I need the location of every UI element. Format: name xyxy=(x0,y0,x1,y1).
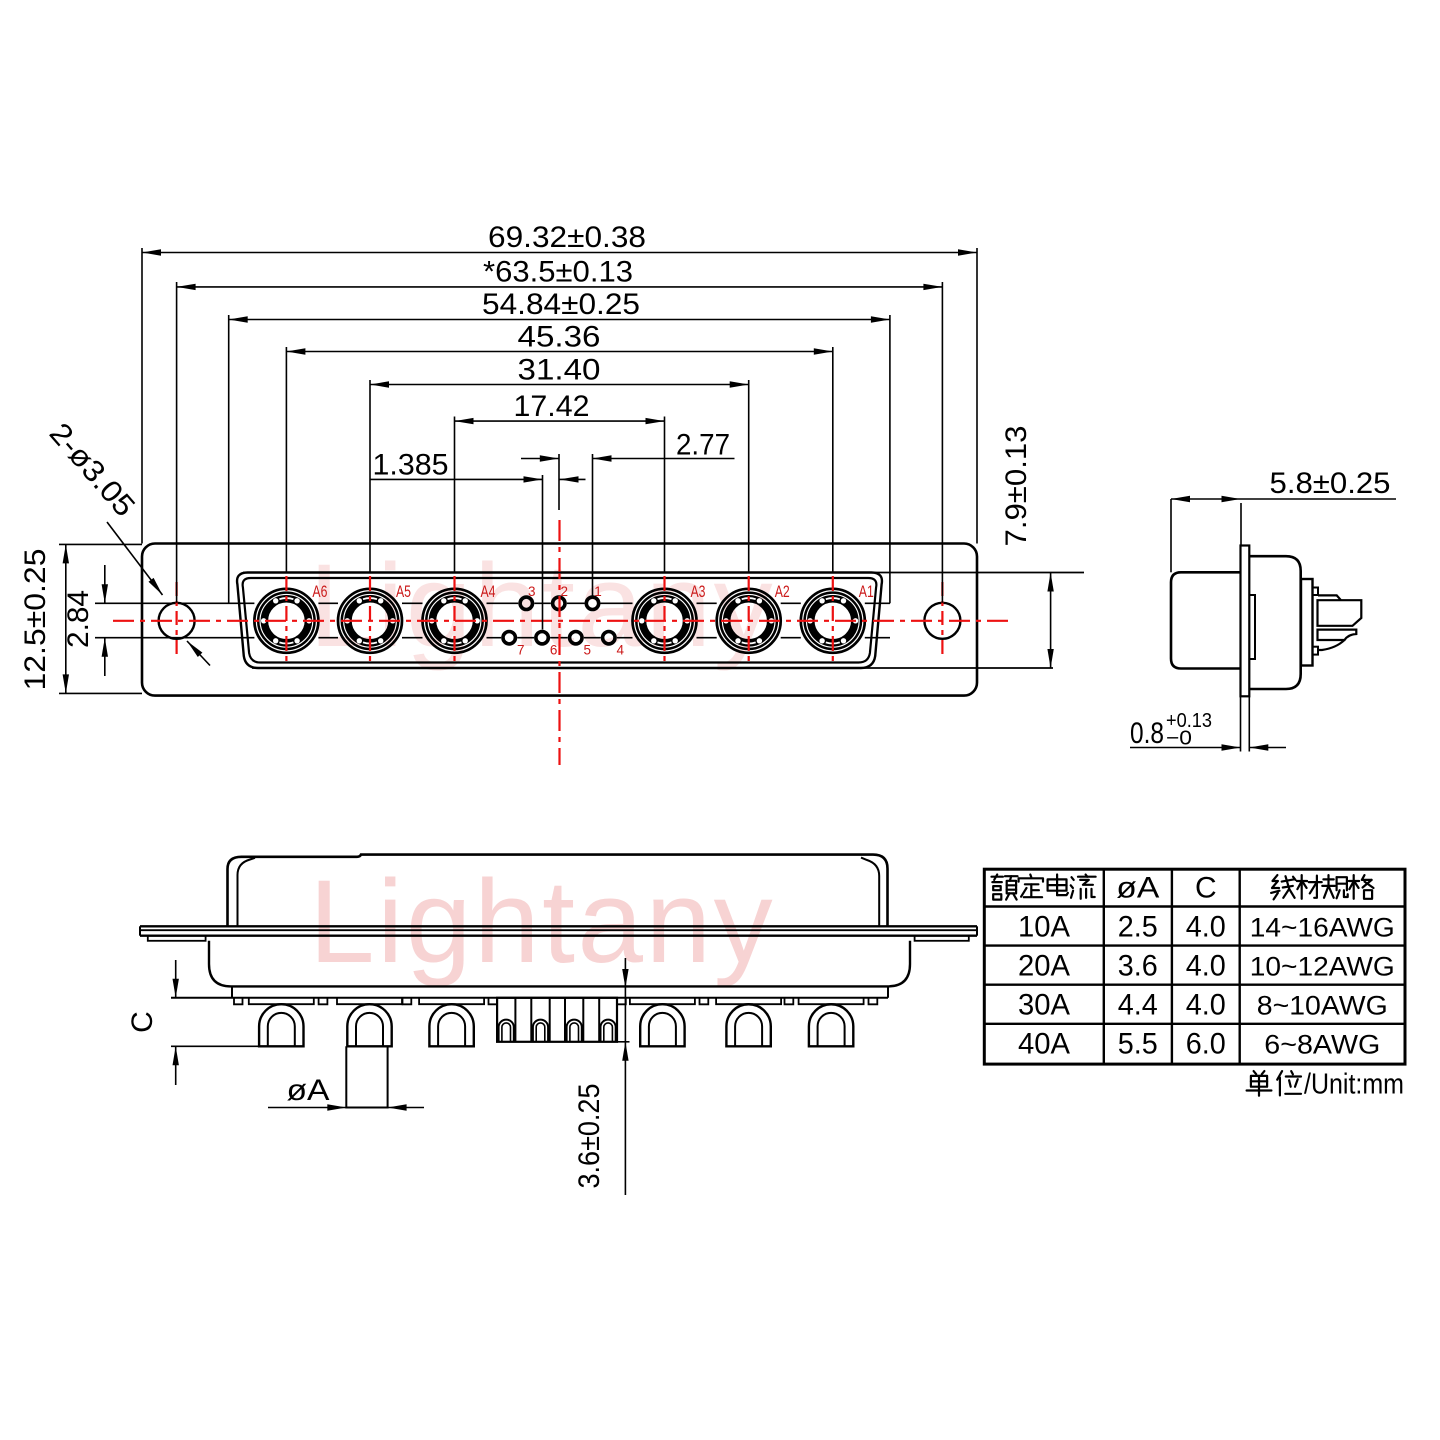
svg-text:4.4: 4.4 xyxy=(1118,989,1158,1022)
svg-text:45.36: 45.36 xyxy=(518,321,601,354)
svg-text:14~16AWG: 14~16AWG xyxy=(1250,913,1395,943)
svg-text:4: 4 xyxy=(616,643,624,658)
svg-text:C: C xyxy=(1195,872,1217,905)
svg-text:*63.5±0.13: *63.5±0.13 xyxy=(483,256,633,289)
svg-text:3: 3 xyxy=(528,584,536,599)
svg-text:2: 2 xyxy=(561,584,569,599)
svg-text:4.0: 4.0 xyxy=(1186,989,1226,1022)
svg-text:3.6±0.25: 3.6±0.25 xyxy=(573,1084,606,1189)
svg-text:20A: 20A xyxy=(1018,950,1070,983)
svg-text:8~10AWG: 8~10AWG xyxy=(1257,991,1388,1021)
svg-text:A5: A5 xyxy=(396,582,411,601)
svg-text:1: 1 xyxy=(594,584,602,599)
svg-text:0.8: 0.8 xyxy=(1130,717,1164,750)
svg-text:69.32±0.38: 69.32±0.38 xyxy=(488,221,646,254)
svg-text:A1: A1 xyxy=(859,582,874,601)
svg-text:6.0: 6.0 xyxy=(1186,1028,1226,1061)
svg-text:5.5: 5.5 xyxy=(1118,1028,1158,1061)
svg-text:10~12AWG: 10~12AWG xyxy=(1250,952,1395,982)
svg-text:7.9±0.13: 7.9±0.13 xyxy=(1000,426,1033,547)
svg-text:3.6: 3.6 xyxy=(1118,950,1158,983)
svg-text:A3: A3 xyxy=(691,582,706,601)
svg-text:2.77: 2.77 xyxy=(676,429,730,462)
svg-text:A6: A6 xyxy=(312,582,327,601)
svg-text:6: 6 xyxy=(550,643,558,658)
svg-text:2.84: 2.84 xyxy=(62,590,95,648)
svg-text:/Unit:mm: /Unit:mm xyxy=(1304,1069,1404,1101)
svg-text:5: 5 xyxy=(584,643,592,658)
svg-text:31.40: 31.40 xyxy=(518,354,601,387)
svg-text:30A: 30A xyxy=(1018,989,1070,1022)
svg-text:4.0: 4.0 xyxy=(1186,911,1226,944)
svg-text:2.5: 2.5 xyxy=(1118,911,1158,944)
svg-text:1.385: 1.385 xyxy=(373,449,449,482)
svg-text:40A: 40A xyxy=(1018,1028,1070,1061)
svg-text:øA: øA xyxy=(287,1074,330,1107)
svg-text:54.84±0.25: 54.84±0.25 xyxy=(482,288,640,321)
svg-text:Lightany: Lightany xyxy=(309,856,775,988)
svg-text:12.5±0.25: 12.5±0.25 xyxy=(19,549,52,691)
svg-text:A4: A4 xyxy=(481,582,496,601)
svg-text:5.8±0.25: 5.8±0.25 xyxy=(1270,467,1391,500)
svg-text:C: C xyxy=(126,1011,159,1033)
svg-text:øA: øA xyxy=(1116,872,1159,905)
svg-text:6~8AWG: 6~8AWG xyxy=(1264,1030,1380,1060)
svg-text:10A: 10A xyxy=(1018,911,1070,944)
svg-text:7: 7 xyxy=(517,643,525,658)
svg-text:4.0: 4.0 xyxy=(1186,950,1226,983)
svg-text:−0: −0 xyxy=(1166,728,1192,750)
svg-text:17.42: 17.42 xyxy=(514,390,590,423)
svg-text:A2: A2 xyxy=(775,582,790,601)
